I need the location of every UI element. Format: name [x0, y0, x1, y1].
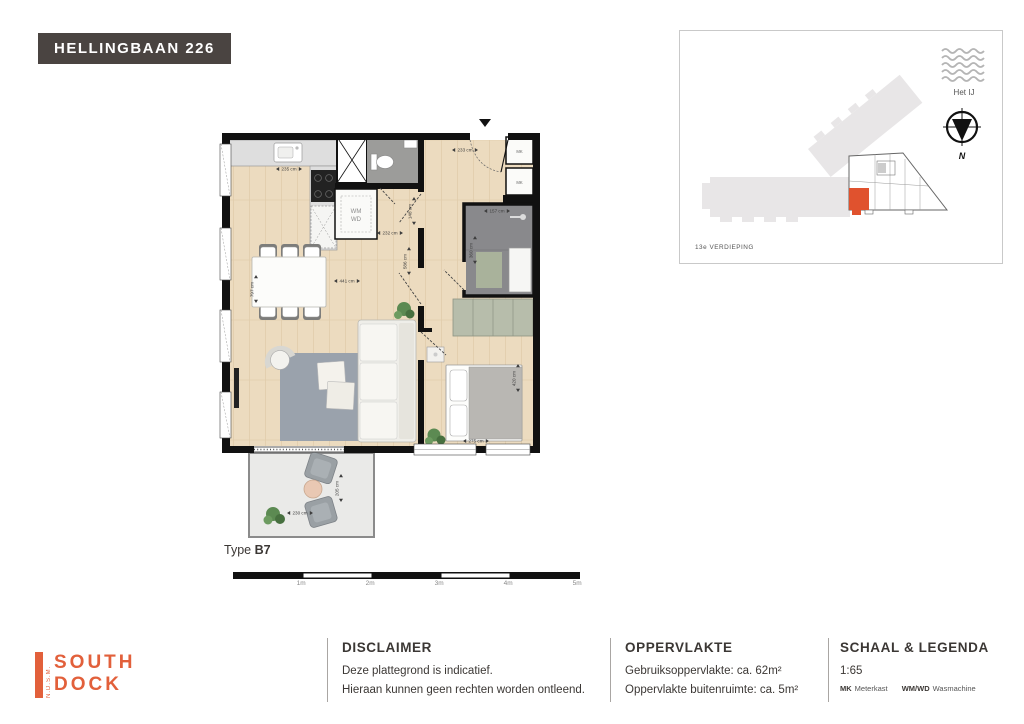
- floor-plate: [849, 153, 947, 215]
- scale-seg: [234, 573, 303, 578]
- type-value: B7: [255, 543, 271, 557]
- compass-icon: [943, 108, 981, 146]
- area-section: OPPERVLAKTE Gebruiksoppervlakte: ca. 62m…: [625, 640, 798, 703]
- legend-item-wm: WM/WDWasmachine: [902, 684, 976, 693]
- stove: [311, 170, 336, 202]
- legend-wm-abbr: WM/WD: [902, 684, 930, 693]
- dim-living-l: 797 cm: [249, 282, 254, 297]
- dim-hall-w: 148 cm: [407, 204, 412, 219]
- scale-label-2m: 2m: [366, 580, 375, 587]
- dining-set: [252, 244, 326, 320]
- site-map-panel: Het IJ N: [679, 30, 1003, 264]
- legend-wm-label: Wasmachine: [933, 684, 976, 693]
- logo-text: SOUTH DOCK: [54, 652, 136, 698]
- area-line1: Gebruiksoppervlakte: ca. 62m²: [625, 665, 798, 677]
- balcony-table: [304, 480, 322, 498]
- area-line2-value: ca. 5m²: [760, 684, 798, 696]
- water-label: Het IJ: [954, 88, 975, 97]
- scale-seg: [510, 573, 579, 578]
- area-line1-label: Gebruiksoppervlakte:: [625, 665, 734, 677]
- dim-living-w: 441 cm: [339, 279, 354, 284]
- dim-kitchen: 235 cm: [281, 167, 296, 172]
- water-waves-icon: [942, 49, 984, 81]
- scale-seg: [372, 573, 441, 578]
- scale-label-3m: 3m: [435, 580, 444, 587]
- logo-bar: [35, 652, 43, 698]
- dim-balcony-w: 230 cm: [292, 511, 307, 516]
- logo-south: SOUTH: [54, 652, 136, 674]
- south-dock-logo: N.D.S.M. SOUTH DOCK: [35, 652, 136, 698]
- page: HELLINGBAAN 226: [0, 0, 1024, 724]
- scale-label-5m: 5m: [573, 580, 582, 587]
- washer-closet: WM WD: [335, 189, 377, 239]
- toilet-sink: [404, 140, 417, 148]
- scale-bar: [233, 572, 580, 579]
- disclaimer-line1: Deze plattegrond is indicatief.: [342, 665, 585, 677]
- disclaimer-title: DISCLAIMER: [342, 640, 585, 655]
- logo-ndsm: N.D.S.M.: [46, 652, 52, 698]
- dim-wm: 232 cm: [382, 231, 397, 236]
- dim-entry: 233 cm: [457, 148, 472, 153]
- bath-mat: [476, 252, 502, 288]
- tv: [234, 368, 239, 408]
- wardrobe: [453, 299, 533, 336]
- dim-hall-l: 586 cm: [402, 254, 407, 269]
- scale-label-4m: 4m: [504, 580, 513, 587]
- scale-seg: [303, 573, 372, 578]
- dim-bedroom-w: 275 cm: [468, 439, 483, 444]
- footer-divider: [610, 638, 611, 702]
- page-title: HELLINGBAAN 226: [38, 33, 231, 64]
- legend-section: SCHAAL & LEGENDA 1:65 MKMeterkast WM/WDW…: [840, 640, 989, 693]
- scale-value: 1:65: [840, 665, 989, 677]
- disclaimer-section: DISCLAIMER Deze plattegrond is indicatie…: [342, 640, 585, 703]
- mk2-label: MK: [516, 180, 522, 185]
- compass-n-label: N: [959, 151, 966, 161]
- dim-bath-w: 157 cm: [489, 209, 504, 214]
- legend-row: MKMeterkast WM/WDWasmachine: [840, 684, 989, 693]
- legend-title: SCHAAL & LEGENDA: [840, 640, 989, 655]
- area-line2-label: Oppervlakte buitenruimte:: [625, 684, 757, 696]
- disclaimer-line2: Hieraan kunnen geen rechten worden ontle…: [342, 684, 585, 696]
- type-word: Type: [224, 543, 251, 557]
- area-line1-value: ca. 62m²: [737, 665, 782, 677]
- dining-table: [252, 257, 326, 307]
- legend-mk-label: Meterkast: [855, 684, 888, 693]
- shaft: [337, 137, 367, 183]
- mk1-label: MK: [516, 149, 522, 154]
- wd-label: WD: [351, 217, 362, 223]
- footer-divider: [828, 638, 829, 702]
- legend-mk-abbr: MK: [840, 684, 852, 693]
- sofa: [358, 320, 416, 442]
- scale-seg: [441, 573, 510, 578]
- legend-item-mk: MKMeterkast: [840, 684, 888, 693]
- area-title: OPPERVLAKTE: [625, 640, 798, 655]
- dim-balcony-l: 205 cm: [334, 481, 339, 496]
- area-line2: Oppervlakte buitenruimte: ca. 5m²: [625, 684, 798, 696]
- wm-label: WM: [351, 209, 362, 215]
- entrance-arrow-icon: [479, 119, 491, 127]
- floor-plan: WM WD MK MK: [218, 110, 548, 546]
- toilet-room: [367, 137, 420, 187]
- type-label: Type B7: [224, 543, 271, 557]
- dim-bath-l: 360 cm: [468, 243, 473, 258]
- scale-labels: 1m 2m 3m 4m 5m: [233, 580, 578, 590]
- toilet: [377, 156, 394, 169]
- coffee-table-2: [326, 381, 354, 409]
- site-map: Het IJ N: [680, 31, 1002, 263]
- balcony: [249, 451, 374, 537]
- footer-divider: [327, 638, 328, 702]
- dim-bedroom-l: 420 cm: [511, 371, 516, 386]
- bath-vanity: [509, 248, 531, 292]
- logo-dock: DOCK: [54, 674, 136, 696]
- floor-label: 13e VERDIEPING: [695, 244, 754, 251]
- scale-label-1m: 1m: [297, 580, 306, 587]
